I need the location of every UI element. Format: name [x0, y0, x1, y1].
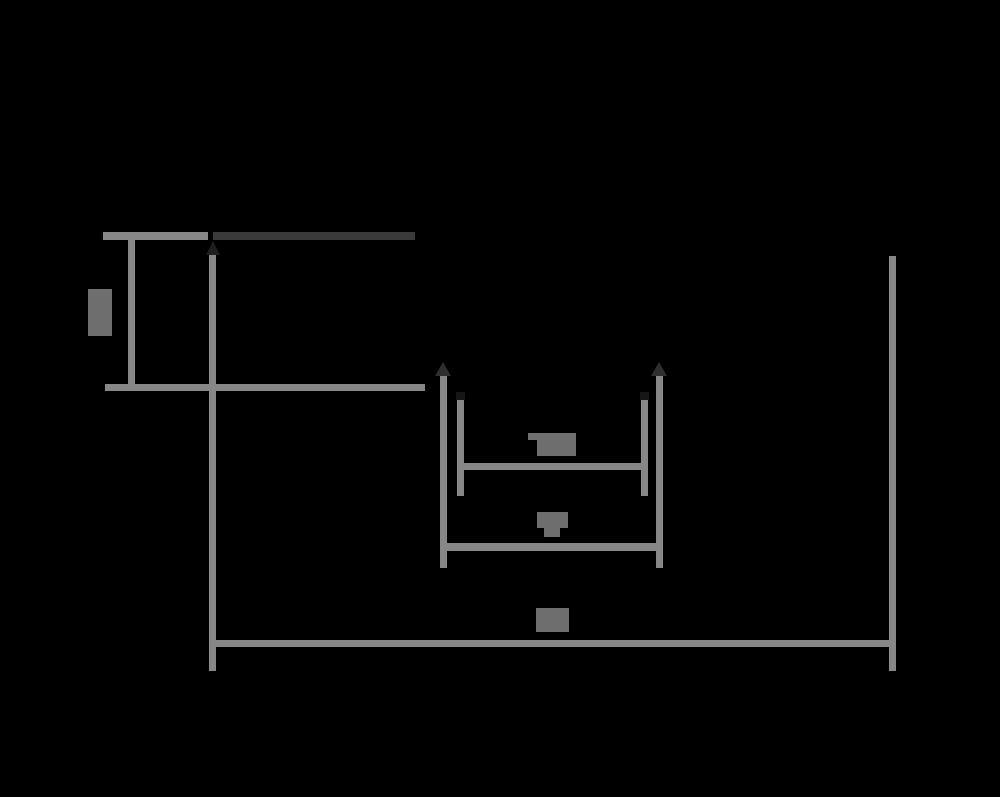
inner-width-dimension-line — [457, 463, 648, 470]
outer-width-dimension-label — [544, 528, 560, 537]
extension-line-top — [103, 232, 208, 240]
inner-width-dimension-label — [537, 433, 576, 456]
up-arrow-icon — [651, 362, 667, 376]
overall-width-dimension-line — [209, 640, 896, 647]
extension-line-middle — [105, 384, 425, 391]
up-arrow-cap-icon — [640, 392, 649, 400]
height-dimension-label — [88, 289, 112, 336]
overall-width-dimension-label — [536, 608, 569, 632]
inner-width-extension-line-left — [457, 400, 464, 496]
overall-width-extension-line-left — [209, 255, 216, 671]
outer-width-dimension-label — [537, 512, 568, 528]
outer-width-dimension-line — [441, 543, 663, 551]
overall-width-extension-line-right — [889, 256, 896, 671]
height-dimension-line — [128, 232, 135, 390]
dark-edge-line-top — [213, 232, 415, 240]
up-arrow-cap-icon — [456, 392, 465, 400]
inner-width-dimension-label — [528, 433, 537, 440]
outer-width-extension-line-left — [440, 376, 447, 568]
outer-width-extension-line-right — [656, 376, 663, 568]
up-arrow-icon — [435, 362, 451, 376]
up-arrow-icon — [206, 241, 220, 255]
diagram-canvas — [0, 0, 1000, 797]
inner-width-extension-line-right — [641, 400, 648, 496]
